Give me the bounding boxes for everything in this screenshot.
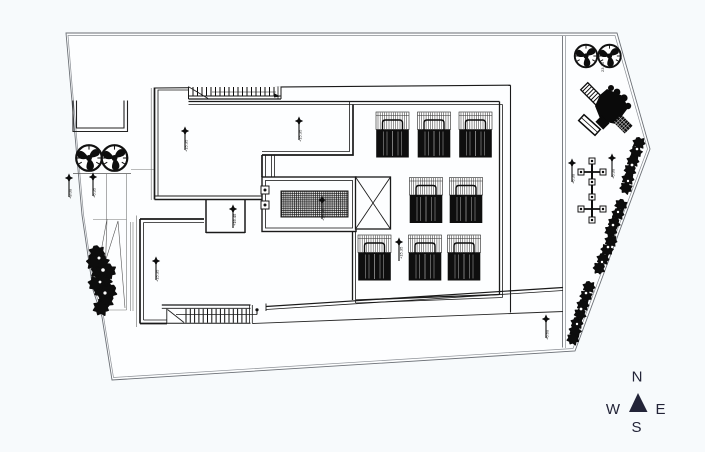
svg-text:S: S [631, 419, 641, 436]
svg-text:+6.30: +6.30 [611, 168, 616, 179]
svg-text:E: E [655, 401, 665, 418]
svg-text:+15.35: +15.35 [155, 269, 160, 282]
svg-text:+6.60: +6.60 [545, 329, 550, 340]
svg-text:23.10: 23.10 [600, 61, 605, 72]
svg-text:+6.30: +6.30 [571, 173, 576, 184]
svg-text:N: N [632, 369, 643, 386]
svg-text:+15.35: +15.35 [298, 129, 303, 142]
svg-text:W: W [606, 401, 621, 418]
svg-text:+15.35: +15.35 [399, 246, 404, 259]
svg-text:+6.35: +6.35 [92, 187, 97, 198]
svg-text:+15.35: +15.35 [321, 208, 326, 221]
svg-text:+16.45: +16.45 [232, 213, 237, 226]
svg-text:+8.00: +8.00 [68, 188, 73, 199]
svg-text:+15.35: +15.35 [184, 139, 189, 152]
